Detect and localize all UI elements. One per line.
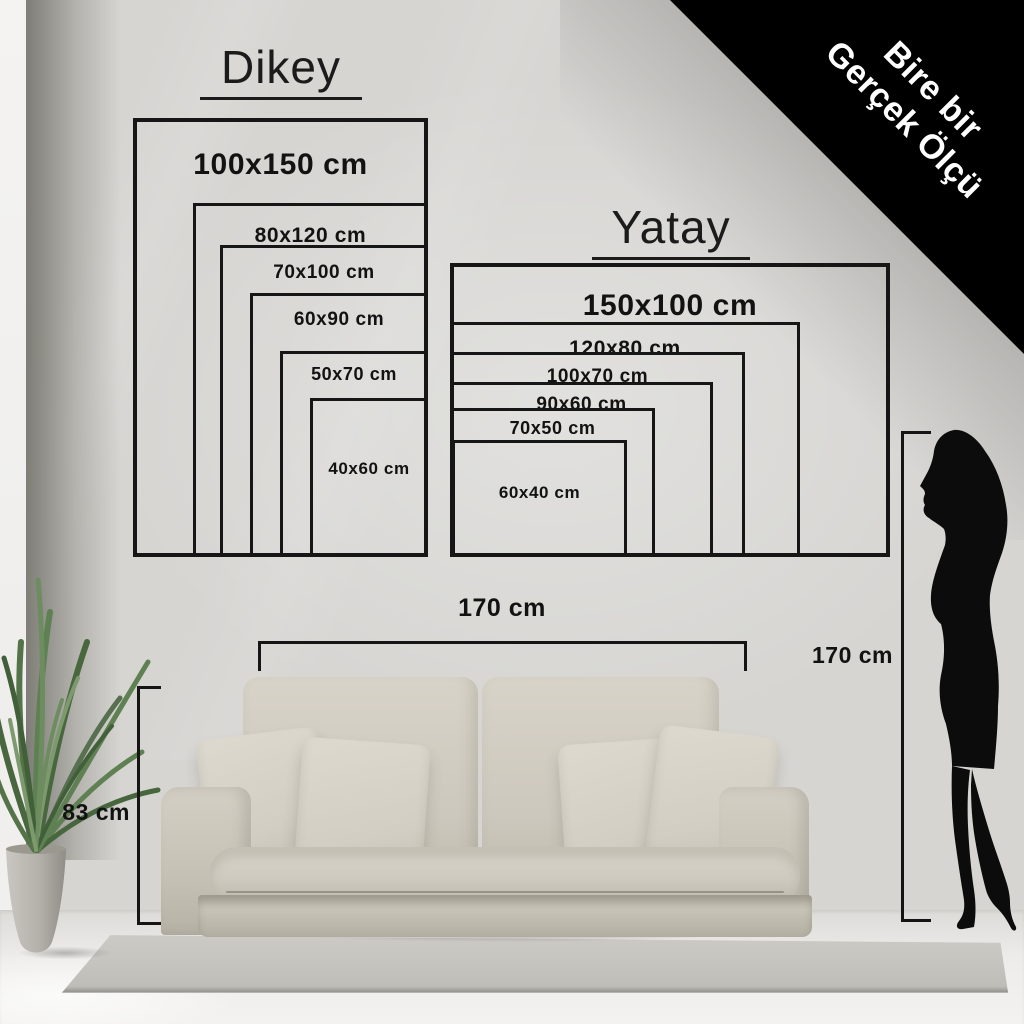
size-guide-scene: Dikey 100x150 cm 80x120 cm 70x100 cm 60x… <box>0 0 1024 1024</box>
vertical-sizes-title: Dikey <box>200 40 362 100</box>
size-label: 150x100 cm <box>454 289 886 323</box>
size-label: 100x150 cm <box>137 148 424 182</box>
sofa-width-label: 170 cm <box>402 594 602 623</box>
person-height-label: 170 cm <box>793 642 893 669</box>
size-label: 70x50 cm <box>453 418 652 439</box>
horizontal-sizes-title: Yatay <box>592 200 750 260</box>
horizontal-size-box-6: 60x40 cm <box>452 440 627 557</box>
sofa-height-label: 83 cm <box>38 799 130 826</box>
size-label: 60x90 cm <box>253 309 425 331</box>
person-height-bracket <box>901 431 931 922</box>
sofa-base <box>198 895 812 937</box>
size-label: 40x60 cm <box>313 459 425 479</box>
size-label: 70x100 cm <box>223 262 425 284</box>
vertical-size-box-6: 40x60 cm <box>310 398 428 557</box>
sofa-height-bracket <box>137 686 161 925</box>
size-label: 50x70 cm <box>283 364 425 385</box>
sofa-width-bracket <box>258 641 747 671</box>
size-label: 60x40 cm <box>455 483 624 503</box>
